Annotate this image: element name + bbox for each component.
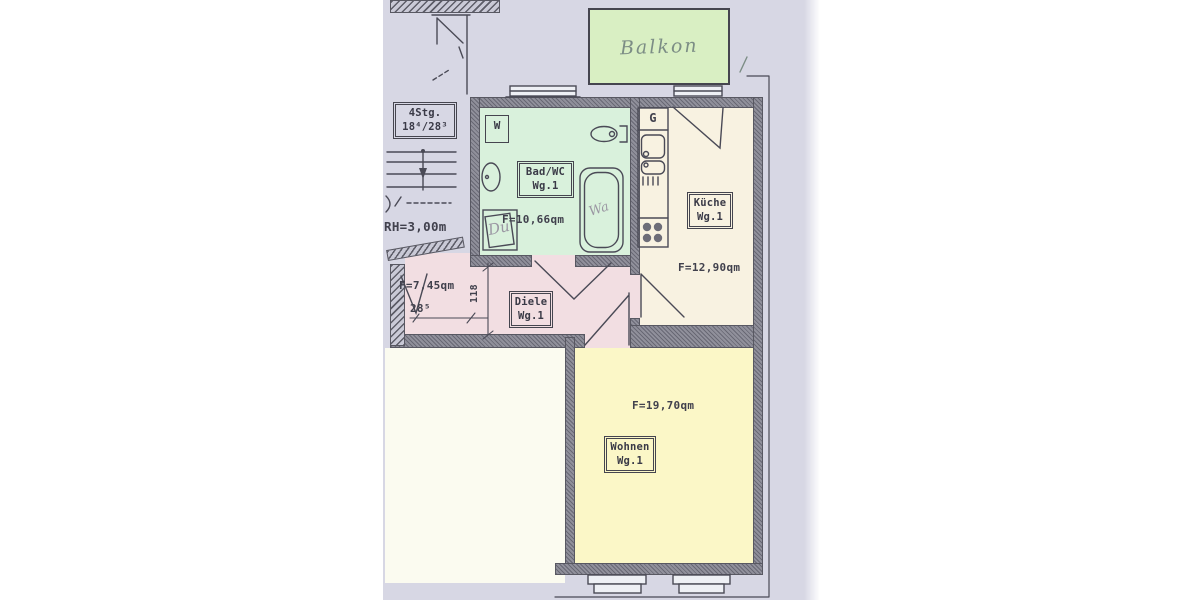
- dimension-lines: [410, 263, 493, 339]
- stairs-count-line1: 4Stg.: [409, 107, 442, 119]
- hall-name: Diele: [515, 296, 548, 308]
- stairs-count-line2: 18⁴/28³: [402, 121, 448, 133]
- plan-linework: [383, 0, 820, 600]
- bath-area-label: F=10,66qm: [502, 213, 564, 226]
- living-name: Wohnen: [610, 441, 649, 453]
- washing-machine-box: W: [485, 115, 509, 143]
- living-name-box: Wohnen Wg.1: [604, 436, 656, 473]
- stove-icon: [643, 223, 662, 242]
- living-window-1: [588, 575, 646, 584]
- building-outline: [555, 76, 769, 597]
- stairwell-door-lines: [432, 15, 470, 94]
- washing-machine-label: W: [494, 119, 501, 132]
- scanned-floorplan-page: Balkon: [0, 0, 1200, 600]
- handwritten-tick: [740, 57, 747, 72]
- door-swing-lines: [401, 107, 723, 345]
- living-window-2: [673, 575, 730, 584]
- kitchen-unit: Wg.1: [697, 211, 723, 223]
- stairs-count-box: 4Stg. 18⁴/28³: [393, 102, 457, 139]
- toilet-icon: [591, 126, 627, 142]
- sink-icon: [482, 163, 500, 191]
- kitchen-door-swing: [641, 274, 684, 317]
- kitchen-name-box: Küche Wg.1: [687, 192, 733, 229]
- hall-unit: Wg.1: [518, 310, 544, 322]
- kitchen-name: Küche: [694, 197, 727, 209]
- hall-name-box: Diele Wg.1: [509, 291, 553, 328]
- living-door-swing: [585, 293, 629, 345]
- hall-step-dim: 28⁵: [410, 302, 431, 315]
- stove-letter-label: G: [639, 111, 667, 125]
- bath-name: Bad/WC: [526, 166, 565, 178]
- hall-width-dim: 118: [469, 284, 480, 303]
- balcony-door-swing: [673, 107, 723, 148]
- bath-unit: Wg.1: [532, 180, 558, 192]
- bath-name-box: Bad/WC Wg.1: [517, 161, 574, 198]
- kitchen-area-label: F=12,90qm: [678, 261, 740, 274]
- floorplan-scan: Balkon: [383, 0, 820, 600]
- stairs-icon: [386, 149, 456, 212]
- living-unit: Wg.1: [617, 455, 643, 467]
- room-height-label: RH=3,00m: [384, 219, 447, 234]
- living-area-label: F=19,70qm: [632, 399, 694, 412]
- kitchen-sink-icon: [642, 135, 665, 158]
- hall-area-label: F=7,45qm: [399, 279, 454, 292]
- kitchen-counter-icon: [638, 108, 668, 247]
